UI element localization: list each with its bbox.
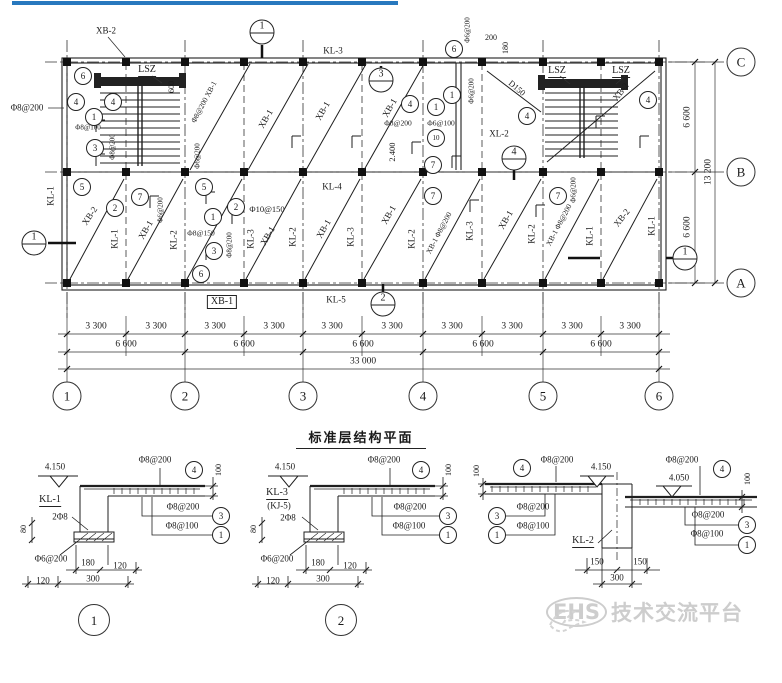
circled-ref: 4 [713,460,731,478]
circled-ref: 3 [212,507,230,525]
circled-ref: 4 [513,459,531,477]
drawing-label: 6 600 [352,340,373,350]
watermark: EHS 技术交流平台 [546,597,743,627]
underlined-label: KL-2 [572,536,594,548]
circled-ref: 7 [424,156,442,174]
circled-ref: 6 [74,67,92,85]
section-mark: 1 [250,20,275,45]
underlined-label: KL-1 [39,495,61,507]
underlined-label: LSZ [612,66,630,78]
circled-ref: 3 [738,516,756,534]
drawing-label: Φ6@100 [427,119,454,127]
drawing-label: 3 300 [381,322,402,332]
grid-bubble: 4 [409,382,438,411]
drawing-label: 6 600 [590,340,611,350]
circled-ref: 3 [488,507,506,525]
drawing-label: Φ6@200 [195,143,202,169]
drawing-label: 100 [744,473,752,485]
drawing-label: 4.150 [45,463,65,472]
circled-ref: 1 [204,208,222,226]
circled-ref: 4 [639,91,657,109]
drawing-label: Φ8@200 [692,511,725,520]
grid-bubble: B [727,158,756,187]
underlined-label: LSZ [138,65,156,77]
circled-ref: 1 [85,108,103,126]
grid-bubble: 5 [529,382,558,411]
drawing-label: Φ8@200 [139,456,172,465]
circled-ref: 4 [518,107,536,125]
drawing-label: XB-2 [96,27,116,36]
drawing-label: Φ8@150 [187,229,214,237]
drawing-label: Φ8@200 [384,119,411,127]
drawing-label: KL-3 [247,229,256,249]
drawing-label: 120 [343,562,357,571]
drawing-label: 600 [168,81,176,93]
drawing-label: KL-2 [289,227,298,247]
circled-ref: 3 [205,242,223,260]
drawing-label: Φ6@200 [35,555,68,564]
drawing-label: 120 [113,562,127,571]
drawing-title: 标准层结构平面 [296,427,426,449]
grid-bubble: A [727,269,756,298]
drawing-label: 6 600 [683,106,693,127]
drawing-label: 4.150 [591,463,611,472]
section-mark: 1 [673,246,698,271]
circled-ref: 6 [445,40,463,58]
grid-bubble: 2 [171,382,200,411]
drawing-label: Φ8@100 [393,522,426,531]
section-mark: 2 [371,292,396,317]
drawing-label: 120 [266,577,280,586]
drawing-label: 180 [502,42,510,54]
drawing-label: KL-1 [111,229,120,249]
drawing-label: 3 300 [501,322,522,332]
circled-ref: 4 [185,461,203,479]
drawing-label: Φ8@200 [227,232,234,258]
drawing-label: Φ8@100 [691,530,724,539]
circled-ref: 4 [104,93,122,111]
drawing-label: 100 [215,464,223,476]
drawing-label: 3 300 [204,322,225,332]
circled-ref: 7 [131,188,149,206]
drawing-label: 100 [473,465,481,477]
drawing-label: 4.050 [669,474,689,483]
underlined-label: LSZ [548,66,566,78]
circled-ref: 1 [443,86,461,104]
drawing-label: Φ10@150 [249,205,284,214]
grid-bubble: 1 [53,382,82,411]
circled-ref: 2 [106,199,124,217]
drawing-label: Φ8@200 [666,456,699,465]
drawing-label: 100 [445,464,453,476]
drawing-label: 3 300 [441,322,462,332]
drawing-label: Φ8@200 [110,134,117,160]
circled-ref: 5 [73,178,91,196]
drawing-label: Φ6@200 [261,555,294,564]
drawing-label: 3 300 [85,322,106,332]
underlined-label: KL-3 [266,488,288,500]
drawing-label: 80 [20,525,28,533]
drawing-label: Φ8@200 [368,456,401,465]
drawing-label: Φ8@200 [517,503,550,512]
drawing-label: Φ8@200 [167,503,200,512]
drawing-label: 300 [86,575,100,584]
circled-ref: 7 [424,187,442,205]
drawing-label: 2.400 [388,142,397,161]
drawing-sheet: XB-2KL-3LSZ600Φ8@200Φ8@100Φ8@200Φ8@200 X… [0,0,782,683]
drawing-label: (KJ-5) [267,502,291,511]
drawing-label: 6 600 [115,340,136,350]
drawing-label: 13 200 [704,159,714,185]
dove-icon [546,597,588,637]
drawing-label: 150 [633,558,647,567]
section-mark: 1 [22,231,47,256]
drawing-label: Φ6@200 [465,17,472,43]
drawing-label: KL-3 [347,227,356,247]
circled-ref: 1 [427,98,445,116]
drawing-label: 300 [610,574,624,583]
drawing-label: Φ6@200 [469,78,476,104]
drawing-label: Φ8@100 [517,522,550,531]
drawing-label: 180 [81,559,95,568]
circled-ref: 4 [67,93,85,111]
drawing-label: Φ8@200 [541,456,574,465]
drawing-label: Φ6@200 [158,197,165,223]
drawing-label: 3 300 [321,322,342,332]
drawing-label: KL-1 [586,226,595,246]
drawing-label: 2Φ8 [52,513,68,522]
drawing-label: Φ8@100 [75,125,101,132]
circled-ref: 10 [427,129,445,147]
drawing-label: Φ8@200 [394,503,427,512]
drawing-label: 3 300 [561,322,582,332]
circled-ref: 1 [439,526,457,544]
drawing-label: KL-2 [528,224,537,244]
drawing-label: Φ8@100 [166,522,199,531]
drawing-label: 180 [311,559,325,568]
grid-bubble: 3 [289,382,318,411]
detail-number: 1 [78,604,110,636]
drawing-label: 3 300 [145,322,166,332]
drawing-label: 6 600 [233,340,254,350]
circled-ref: 3 [439,507,457,525]
drawing-label: Φ8@200 [11,104,44,113]
drawing-label: 6 600 [472,340,493,350]
section-mark: 4 [502,146,527,171]
drawing-label: 3 300 [263,322,284,332]
drawing-label: Φ6@200 [571,177,578,203]
circled-ref: 3 [86,139,104,157]
circled-ref: 1 [488,526,506,544]
drawing-label: 3 300 [619,322,640,332]
drawing-label: KL-4 [322,183,342,192]
drawing-label: KL-1 [47,186,56,206]
drawing-label: 33 000 [350,357,376,367]
detail-number: 2 [325,604,357,636]
drawing-label: 120 [36,577,50,586]
section-mark: 3 [369,68,394,93]
circled-ref: 6 [192,265,210,283]
drawing-label: 4.150 [275,463,295,472]
drawing-label: 200 [485,34,497,42]
circled-ref: 4 [401,95,419,113]
drawing-label: 300 [316,575,330,584]
circled-ref: 1 [212,526,230,544]
slab-label: XB-1 [207,295,237,309]
drawing-label: 80 [250,525,258,533]
drawing-label: KL-2 [408,229,417,249]
circled-ref: 5 [195,178,213,196]
drawing-label: KL-3 [466,221,475,241]
drawing-label: KL-2 [170,230,179,250]
drawing-label: 2Φ8 [280,514,296,523]
drawing-label: XL-2 [489,130,509,139]
drawing-label: 150 [590,558,604,567]
drawing-label: KL-3 [323,47,343,56]
drawing-label: KL-5 [326,296,346,305]
grid-bubble: 6 [645,382,674,411]
circled-ref: 2 [227,198,245,216]
drawing-label: KL-1 [648,216,657,236]
circled-ref: 4 [412,461,430,479]
circled-ref: 7 [549,187,567,205]
circled-ref: 1 [738,536,756,554]
watermark-text: 技术交流平台 [611,597,743,627]
grid-bubble: C [727,48,756,77]
drawing-label: 6 600 [683,216,693,237]
